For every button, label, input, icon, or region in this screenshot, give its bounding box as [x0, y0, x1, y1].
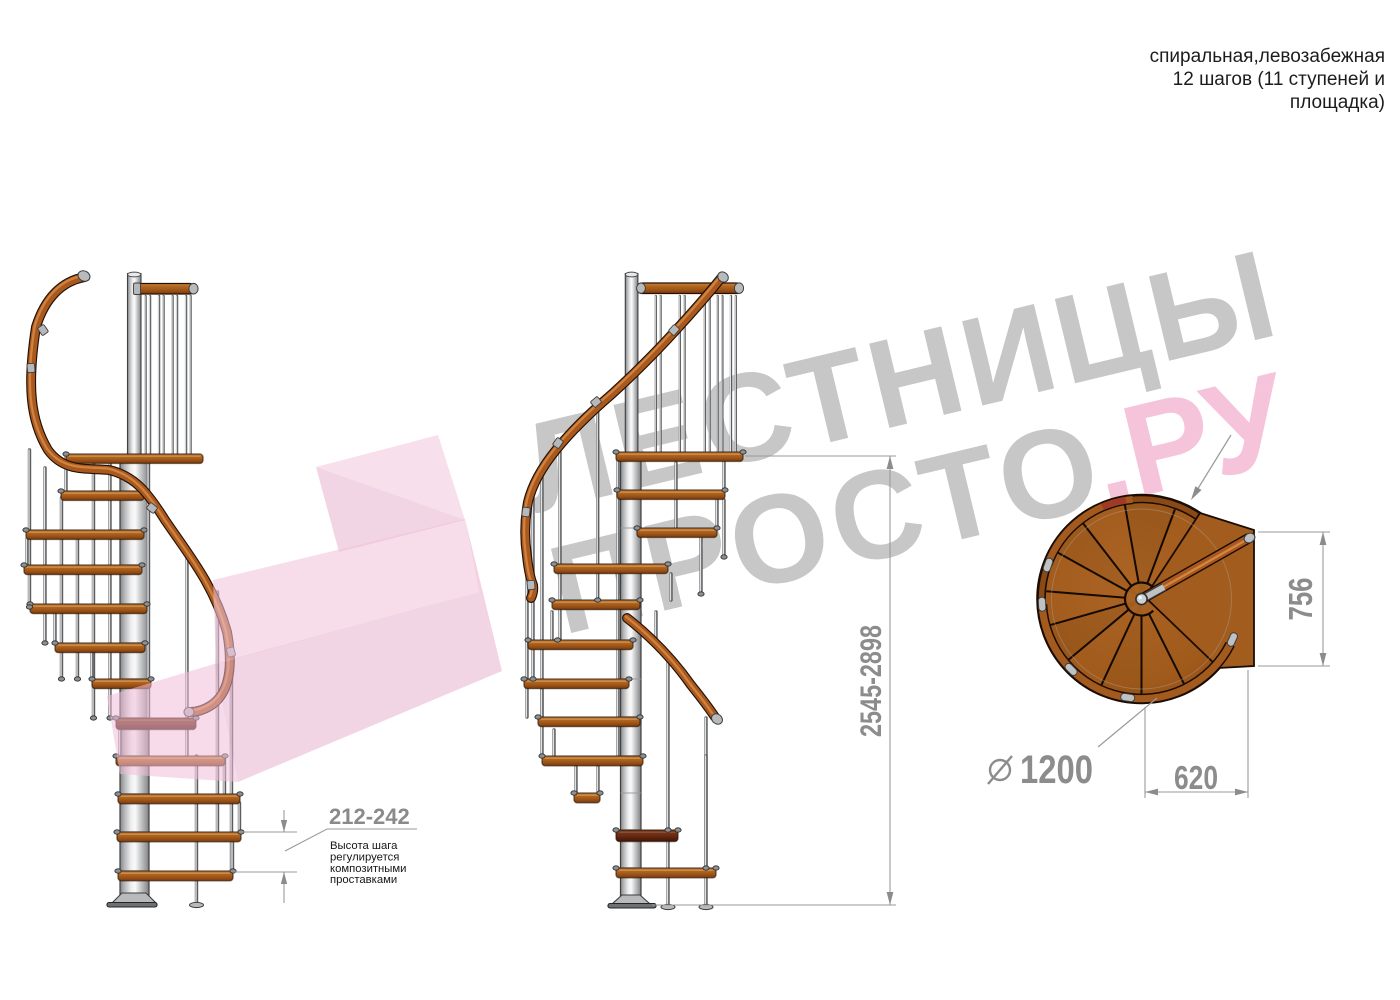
- svg-text:756: 756: [1282, 578, 1319, 621]
- svg-text:проставками: проставками: [330, 874, 397, 886]
- svg-text:212-242: 212-242: [329, 804, 410, 829]
- svg-text:1200: 1200: [1020, 748, 1093, 792]
- svg-text:спиральная,левозабежная: спиральная,левозабежная: [1150, 46, 1385, 67]
- svg-text:12 шагов (11 ступеней и: 12 шагов (11 ступеней и: [1173, 69, 1385, 90]
- svg-text:Высота шага: Высота шага: [330, 840, 398, 852]
- svg-text:композитными: композитными: [330, 863, 407, 875]
- svg-text:регулируется: регулируется: [330, 851, 399, 863]
- svg-text:2545-2898: 2545-2898: [855, 625, 888, 737]
- svg-text:620: 620: [1174, 759, 1218, 796]
- svg-text:площадка): площадка): [1290, 92, 1385, 113]
